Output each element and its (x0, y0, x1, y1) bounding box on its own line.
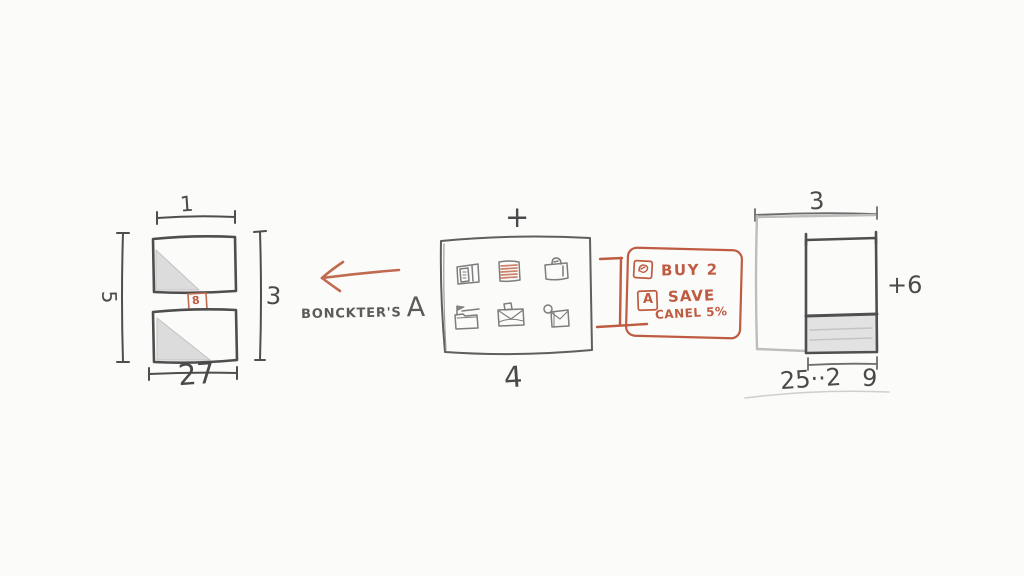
left-dim-top-label: 1 (179, 194, 194, 216)
notes-icon (499, 261, 520, 281)
left-badge-label: 8 (191, 295, 200, 307)
right-dim-bottom-right-label: 9 (861, 366, 878, 391)
left-dim-right-label: 3 (265, 284, 282, 309)
bag-icon (544, 305, 569, 327)
annotation-badge-label: A (643, 293, 653, 306)
annotation-line2: SAVE (668, 288, 716, 305)
card-plus-label: + (505, 203, 529, 232)
briefcase-icon (545, 258, 568, 280)
right-dim-top-label: 3 (808, 188, 825, 213)
left-dim-left-label: 5 (99, 290, 119, 303)
right-inner-rect (806, 232, 877, 353)
icon-card (441, 237, 592, 355)
sketch-canvas: 1 5 3 27 8 BONCKTER'S A + 4 BUY 2 SAVE C… (0, 0, 1024, 576)
left-rect-top (153, 236, 236, 292)
inbox-icon (498, 303, 524, 326)
coin-scribble-icon (634, 261, 653, 279)
annotation-line1: BUY 2 (661, 262, 719, 278)
caption: BONCKTER'S A (301, 292, 426, 325)
annotation-line3: CANEL 5% (655, 305, 728, 321)
caption-text: BONCKTER'S (301, 305, 402, 325)
left-arrow-icon (322, 262, 399, 291)
left-dim-top-line (157, 211, 235, 224)
right-dim-right-label: +6 (887, 273, 922, 297)
left-dim-right-line (254, 231, 266, 360)
sketch-strokes (0, 0, 1024, 576)
caption-suffix: A (406, 292, 425, 323)
card-bottom-label: 4 (503, 362, 523, 392)
folder-flag-icon (455, 306, 479, 329)
left-rect-bottom (153, 309, 237, 362)
right-dim-bottom-left-label: 25··2 (779, 365, 842, 393)
book-icon (457, 264, 479, 284)
left-dim-bottom-label: 27 (177, 359, 216, 391)
